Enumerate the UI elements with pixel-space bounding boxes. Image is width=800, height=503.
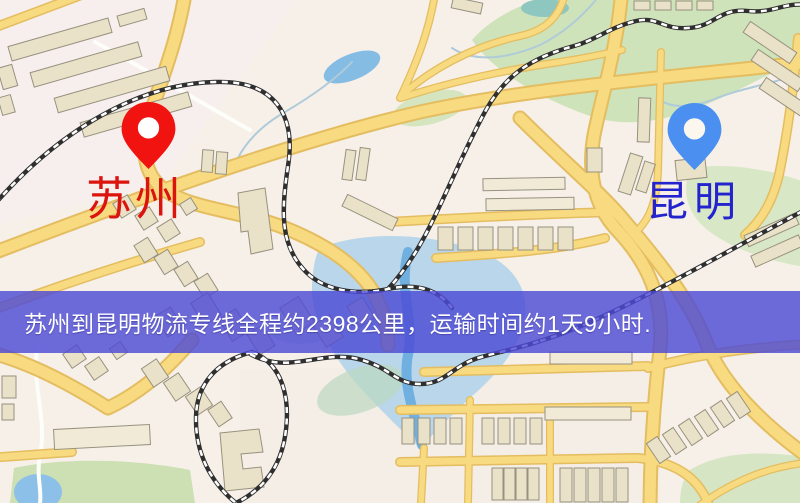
kunming-label: 昆明 xyxy=(646,182,742,224)
route-info-text: 苏州到昆明物流专线全程约2398公里，运输时间约1天9小时. xyxy=(0,305,651,339)
suzhou-marker-icon xyxy=(119,101,178,170)
route-info-banner: 苏州到昆明物流专线全程约2398公里，运输时间约1天9小时. xyxy=(0,291,800,353)
map-canvas xyxy=(0,0,800,503)
logistics-route-map: 苏州 昆明 苏州到昆明物流专线全程约2398公里，运输时间约1天9小时. xyxy=(0,0,800,503)
suzhou-label: 苏州 xyxy=(86,177,184,223)
kunming-marker-icon xyxy=(665,102,724,171)
